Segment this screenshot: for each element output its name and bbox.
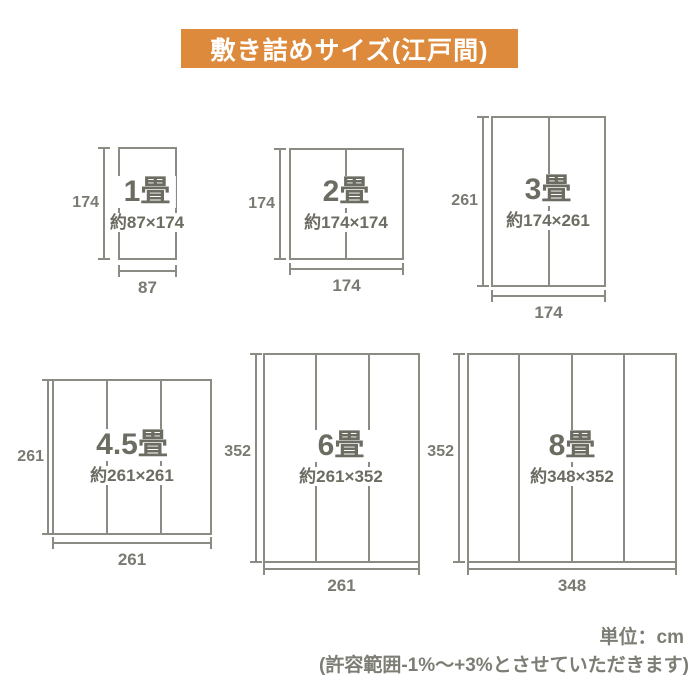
height-dimension-value: 174 <box>231 196 275 212</box>
page: 敷き詰めサイズ(江戸間) 174 87 1畳 約87×174 174 174 2… <box>0 0 700 700</box>
tolerance-note: (許容範囲-1%〜+3%とさせていただきます) <box>319 655 689 678</box>
height-dimension-value: 174 <box>55 195 99 211</box>
tatami-size-label: 約261×352 <box>295 467 387 486</box>
diagram-labels: 1畳 約87×174 <box>106 176 188 232</box>
tatami-count-label: 3畳 <box>519 174 578 206</box>
width-dimension-line <box>467 568 677 570</box>
unit-note: 単位：cm <box>600 627 684 650</box>
tatami-count-label: 8畳 <box>543 430 602 462</box>
title-banner: 敷き詰めサイズ(江戸間) <box>181 29 518 68</box>
width-dimension-line <box>118 270 177 272</box>
tatami-count-label: 4.5畳 <box>90 429 174 461</box>
height-dimension-value: 352 <box>207 444 251 460</box>
height-dimension-value: 352 <box>410 444 454 460</box>
height-dimension-line <box>279 148 281 260</box>
width-dimension-value: 261 <box>52 551 212 568</box>
tatami-divider <box>518 355 520 561</box>
width-dimension-line <box>52 542 212 544</box>
height-dimension-line <box>47 379 49 535</box>
height-dimension-line <box>103 147 105 260</box>
tatami-size-label: 約87×174 <box>106 213 188 232</box>
width-dimension-value: 261 <box>263 577 420 594</box>
tatami-divider <box>623 355 625 561</box>
page-title: 敷き詰めサイズ(江戸間) <box>211 31 489 67</box>
tatami-count-label: 2畳 <box>317 176 376 208</box>
height-dimension-line <box>458 353 460 563</box>
diagram-labels: 3畳 約174×261 <box>502 174 594 230</box>
width-dimension-line <box>263 568 420 570</box>
diagram-labels: 6畳 約261×352 <box>295 430 387 486</box>
tatami-count-label: 6畳 <box>312 430 371 462</box>
tatami-size-label: 約261×261 <box>86 466 178 485</box>
tatami-size-label: 約348×352 <box>526 467 618 486</box>
width-dimension-line <box>289 268 404 270</box>
height-dimension-line <box>482 116 484 287</box>
diagram-labels: 4.5畳 約261×261 <box>86 429 178 485</box>
width-dimension-line <box>491 295 606 297</box>
width-dimension-value: 348 <box>467 577 677 594</box>
height-dimension-value: 261 <box>0 449 44 465</box>
width-dimension-value: 174 <box>289 277 404 294</box>
tatami-size-label: 約174×174 <box>300 213 392 232</box>
height-dimension-line <box>255 353 257 563</box>
diagram-labels: 8畳 約348×352 <box>526 430 618 486</box>
diagram-labels: 2畳 約174×174 <box>300 176 392 232</box>
width-dimension-value: 174 <box>491 304 606 321</box>
tatami-count-label: 1畳 <box>118 176 177 208</box>
height-dimension-value: 261 <box>434 193 478 209</box>
tatami-size-label: 約174×261 <box>502 211 594 230</box>
width-dimension-value: 87 <box>118 279 177 296</box>
